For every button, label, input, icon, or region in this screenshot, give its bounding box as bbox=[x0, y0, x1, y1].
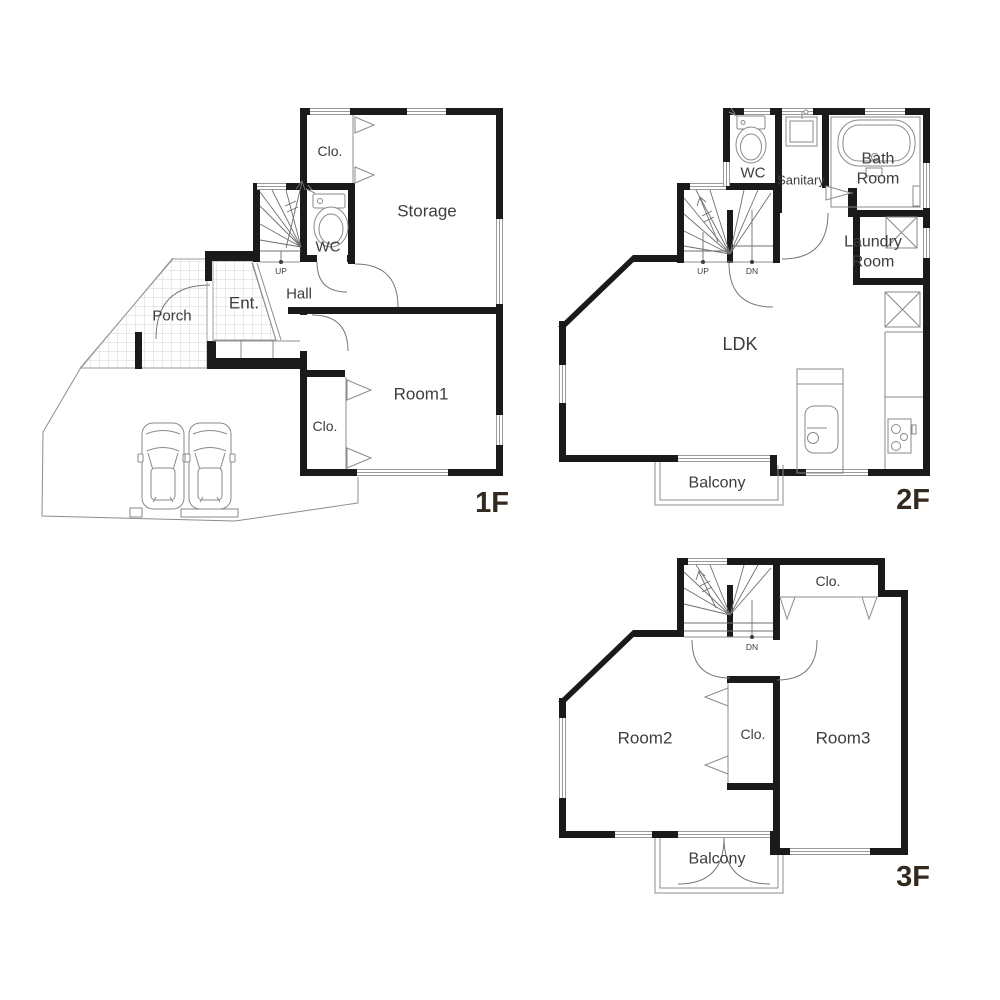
stairs-down-label-2f: DN bbox=[746, 266, 758, 276]
car-icon bbox=[185, 423, 235, 509]
stairs-up-label-2f: UP bbox=[697, 266, 709, 276]
room-label-closet-top-3f: Clo. bbox=[816, 573, 841, 589]
floor-plan-canvas: Clo. Storage WC UP Hall Ent. Porch Room1… bbox=[0, 0, 1000, 1000]
room-label-wc-2f: WC bbox=[741, 165, 766, 182]
room-label-room2: Room2 bbox=[618, 729, 673, 748]
room-label-room3: Room3 bbox=[816, 729, 871, 748]
room-label-balcony-3f: Balcony bbox=[689, 851, 746, 868]
room-label-wc-1f: WC bbox=[316, 239, 341, 256]
room-label-bath-line1: Bath bbox=[862, 151, 895, 168]
room-label-storage: Storage bbox=[397, 202, 457, 221]
room-label-closet-mid-3f: Clo. bbox=[741, 726, 766, 742]
floor-label-1f: 1F bbox=[475, 487, 509, 519]
room-label-room1: Room1 bbox=[394, 385, 449, 404]
room-label-bath-line2: Room bbox=[857, 171, 900, 188]
stairs-down-label-3f: DN bbox=[746, 642, 758, 652]
room-label-sanitary: Sanitary bbox=[777, 173, 825, 188]
parking-marker-small bbox=[130, 508, 142, 517]
parking-marker-long bbox=[181, 509, 238, 517]
room-label-ldk: LDK bbox=[722, 334, 757, 354]
floor-plan-page: Clo. Storage WC UP Hall Ent. Porch Room1… bbox=[0, 0, 1000, 1000]
room-label-entrance: Ent. bbox=[229, 294, 259, 313]
floor-label-3f: 3F bbox=[896, 861, 930, 893]
room-label-closet-room1: Clo. bbox=[313, 418, 338, 434]
stairs-up-label-1f: UP bbox=[275, 266, 287, 276]
floor-label-2f: 2F bbox=[896, 484, 930, 516]
car-icon bbox=[138, 423, 188, 509]
room-label-balcony-2f: Balcony bbox=[689, 475, 746, 492]
room-label-hall: Hall bbox=[286, 286, 312, 303]
room-label-laundry-line2: Room bbox=[852, 254, 895, 271]
room-label-closet-top-1f: Clo. bbox=[318, 143, 343, 159]
room-label-porch: Porch bbox=[152, 308, 191, 325]
room-label-laundry-line1: Laundry bbox=[844, 234, 902, 251]
